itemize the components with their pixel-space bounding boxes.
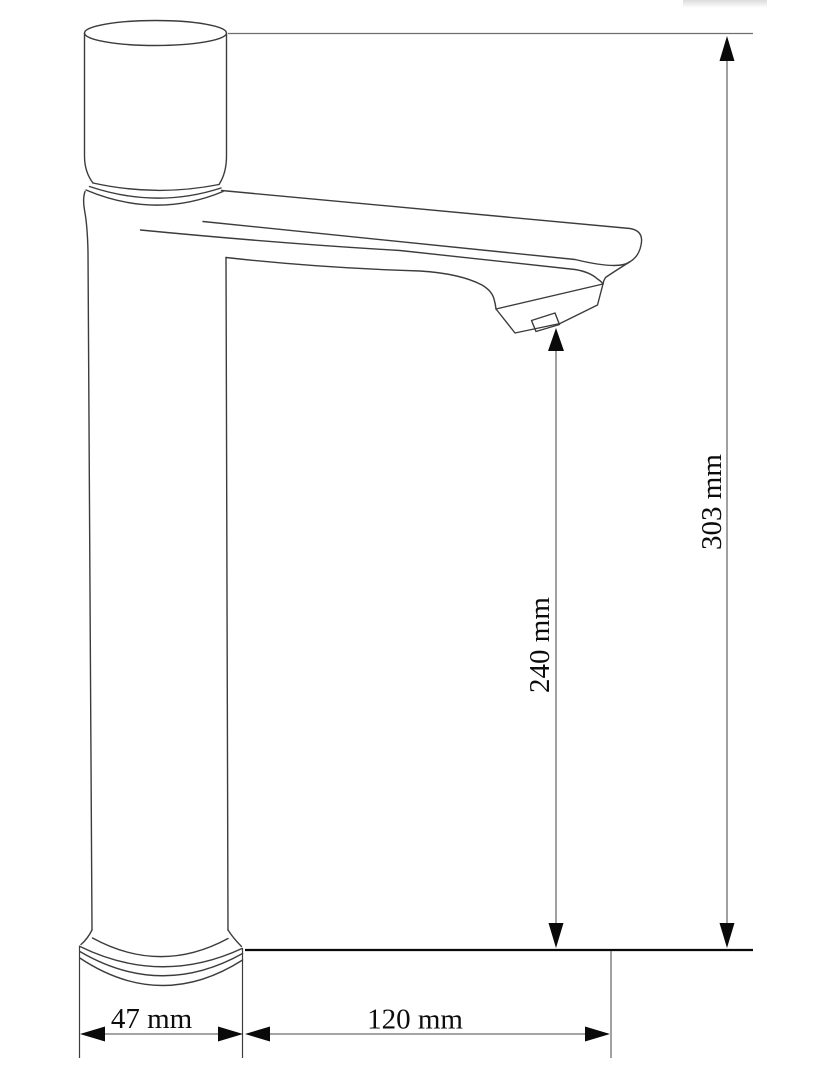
total-height-label: 303 mm bbox=[696, 454, 728, 550]
base-width-label: 47 mm bbox=[111, 1003, 193, 1035]
base-neck-right-curve bbox=[228, 930, 242, 947]
faucet-dimension-drawing-page: 303 mm 240 mm 47 mm 120 mm bbox=[0, 0, 828, 1083]
spout-reach-arrow-right-icon bbox=[585, 1027, 610, 1042]
faucet-spout bbox=[141, 191, 642, 334]
handle-right-side bbox=[219, 33, 227, 185]
handle-collar-upper-arc bbox=[90, 187, 222, 199]
handle-bottom-rim bbox=[93, 183, 219, 190]
dimension-total-height: 303 mm bbox=[696, 36, 735, 948]
spout-reach-label: 120 mm bbox=[367, 1004, 463, 1036]
outlet-height-arrow-down-icon bbox=[549, 923, 564, 948]
spout-reach-arrow-left-icon bbox=[245, 1027, 270, 1042]
total-height-arrow-down-icon bbox=[720, 923, 735, 948]
outlet-height-arrow-up-icon bbox=[548, 328, 564, 351]
faucet-body bbox=[84, 192, 228, 931]
spout-underside-curve bbox=[226, 258, 496, 310]
base-width-arrow-left-icon bbox=[80, 1027, 105, 1042]
outlet-height-label: 240 mm bbox=[524, 597, 556, 693]
base-width-arrow-right-icon bbox=[218, 1027, 243, 1042]
body-left-edge bbox=[84, 192, 92, 931]
dimension-base-width: 47 mm bbox=[80, 1003, 243, 1042]
dimension-outlet-height: 240 mm bbox=[524, 328, 564, 948]
total-height-arrow-up-icon bbox=[720, 36, 735, 61]
faucet-handle bbox=[85, 21, 227, 206]
handle-top-ellipse bbox=[85, 21, 227, 46]
aerator-housing bbox=[496, 284, 603, 333]
faucet-outline bbox=[80, 21, 642, 1059]
faucet-dimension-drawing: 303 mm 240 mm 47 mm 120 mm bbox=[0, 0, 828, 1083]
body-right-edge bbox=[226, 258, 228, 931]
base-inner-rim-arc bbox=[93, 938, 229, 957]
base-neck-left-curve bbox=[81, 930, 92, 945]
base-flange-bottom-arc bbox=[80, 958, 243, 986]
dimension-spout-reach: 120 mm bbox=[245, 1004, 610, 1042]
spout-top-edge bbox=[222, 191, 642, 263]
handle-left-side bbox=[85, 33, 94, 183]
reference-lines bbox=[228, 34, 753, 1059]
spout-front-top-edge bbox=[203, 222, 630, 266]
